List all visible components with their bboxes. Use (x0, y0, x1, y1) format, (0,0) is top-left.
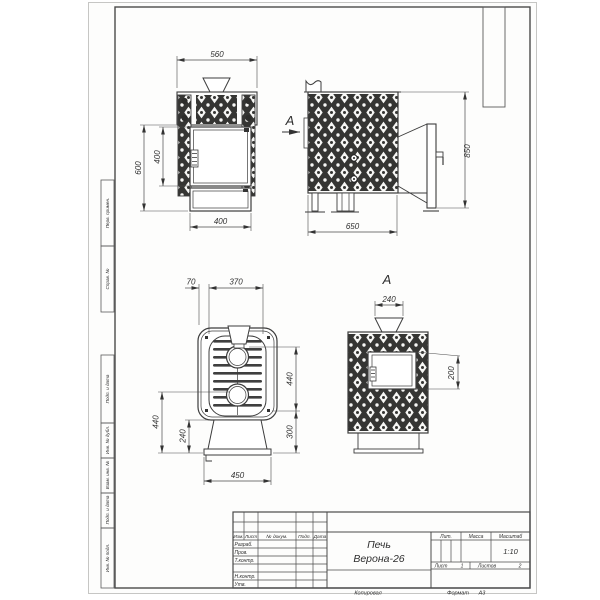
doc-number-stamp-box (483, 7, 505, 107)
dim-text-240-left: 240 (179, 429, 188, 444)
top-view: 70 370 440 300 440 240 450 (152, 278, 301, 486)
knob (245, 98, 251, 104)
tb-row-razrab: Разраб. (235, 542, 253, 548)
side-view: А 850 650 (282, 81, 472, 236)
rear-window (368, 352, 416, 389)
tb-row-prov: Пров. (235, 550, 248, 556)
tb-massa-label: Масса (469, 534, 484, 540)
tb-row-tkontr: Т.контр. (235, 558, 255, 564)
dim-240-left (185, 420, 211, 453)
margin-label-sprav: Справ. № (105, 269, 110, 290)
tb-col-doc: № докум. (266, 534, 287, 540)
margin-label-podp2: Подп. и дата (105, 495, 110, 524)
front-view: 560 600 400 400 (134, 50, 257, 231)
margin-label-invdubl: Инв. № дубл. (105, 426, 110, 454)
dim-text-400-bottom: 400 (214, 217, 228, 226)
dim-text-440-left: 440 (152, 415, 161, 429)
footer-format-value: А3 (478, 591, 487, 597)
corner-screw (267, 409, 270, 412)
ornament-panel-top (196, 95, 237, 124)
dim-text-200: 200 (447, 366, 456, 381)
tb-listov-value: 2 (518, 564, 522, 570)
door-latch (244, 128, 249, 132)
rear-base (354, 433, 423, 453)
dim-70-370 (185, 284, 263, 334)
tb-list-value: 1 (461, 564, 464, 570)
knob (245, 115, 251, 121)
tb-lit-label: Лит. (439, 534, 452, 540)
chimney-funnel-side (306, 81, 321, 92)
tb-row-utv: Утв. (235, 582, 246, 588)
tb-col-data: Дата (313, 534, 327, 540)
base-plate (204, 449, 271, 455)
tb-col-izm: Изм. (233, 534, 243, 540)
ornament-column-left (178, 95, 191, 196)
burner-port-upper (227, 346, 249, 368)
tb-col-list: Лист (244, 534, 257, 540)
dim-text-240-chimney: 240 (381, 295, 396, 304)
dim-text-70: 70 (187, 278, 196, 287)
tb-col-podp: Подп. (298, 534, 311, 540)
ash-drawer (190, 188, 251, 211)
chimney-funnel-topview (228, 326, 250, 344)
margin-label-invpodl: Инв. № подл. (105, 544, 110, 573)
dim-text-300: 300 (286, 425, 295, 439)
dim-text-440-right: 440 (286, 372, 295, 386)
drawer-latch (243, 189, 248, 192)
rear-view-a: А 240 200 (348, 272, 460, 453)
pedestal (208, 420, 267, 449)
knob (181, 98, 187, 104)
section-arrow-label: А (285, 113, 295, 128)
footer-copied: Копировал (354, 591, 381, 597)
dim-text-850: 850 (463, 144, 472, 158)
corner-screw (205, 336, 208, 339)
title-block: Изм. Лист № докум. Подп. Дата Разраб. Пр… (233, 512, 530, 588)
view-a-label: А (382, 272, 392, 287)
burner-port-lower (227, 384, 249, 406)
doc-name-line1: Печь (367, 539, 391, 551)
dim-text-600: 600 (134, 161, 143, 175)
margin-label-vzam: Взам. инв. № (105, 461, 110, 489)
corner-screw (205, 409, 208, 412)
margin-label-podp1: Подп. и дата (105, 374, 110, 403)
knob (181, 115, 187, 121)
door-hinge (191, 150, 198, 167)
dim-text-650: 650 (346, 222, 360, 231)
drawing-canvas: Перв. примен. Справ. № Подп. и дата Инв.… (0, 0, 600, 600)
door-handle (436, 152, 443, 157)
stove-legs (305, 193, 439, 212)
dim-text-370: 370 (229, 278, 243, 287)
footer-strip: Копировал Формат А3 (354, 591, 486, 597)
fuel-channel-frame (398, 124, 443, 208)
chimney-funnel-rear (375, 318, 403, 332)
tb-row-nkontr: Н.контр. (235, 574, 256, 580)
tb-list-label: Лист (434, 564, 448, 570)
dim-text-560: 560 (210, 50, 224, 59)
tb-listov-label: Листов (477, 564, 497, 570)
dim-text-400-door: 400 (153, 150, 162, 164)
margin-label-perv: Перв. примен. (105, 198, 110, 229)
chimney-funnel-front (203, 78, 230, 92)
doc-name-line2: Верона-26 (353, 553, 404, 565)
stove-door (190, 127, 251, 186)
corner-screw (267, 336, 270, 339)
window-hinge (370, 367, 376, 381)
dim-text-450: 450 (231, 471, 245, 480)
hinge-edge-tab (304, 118, 308, 148)
margin-labels: Перв. примен. Справ. № Подп. и дата Инв.… (105, 198, 110, 573)
tb-scale-value: 1:10 (503, 547, 518, 556)
footer-format-label: Формат (447, 591, 469, 597)
tb-masshtab-label: Масштаб (499, 534, 523, 540)
